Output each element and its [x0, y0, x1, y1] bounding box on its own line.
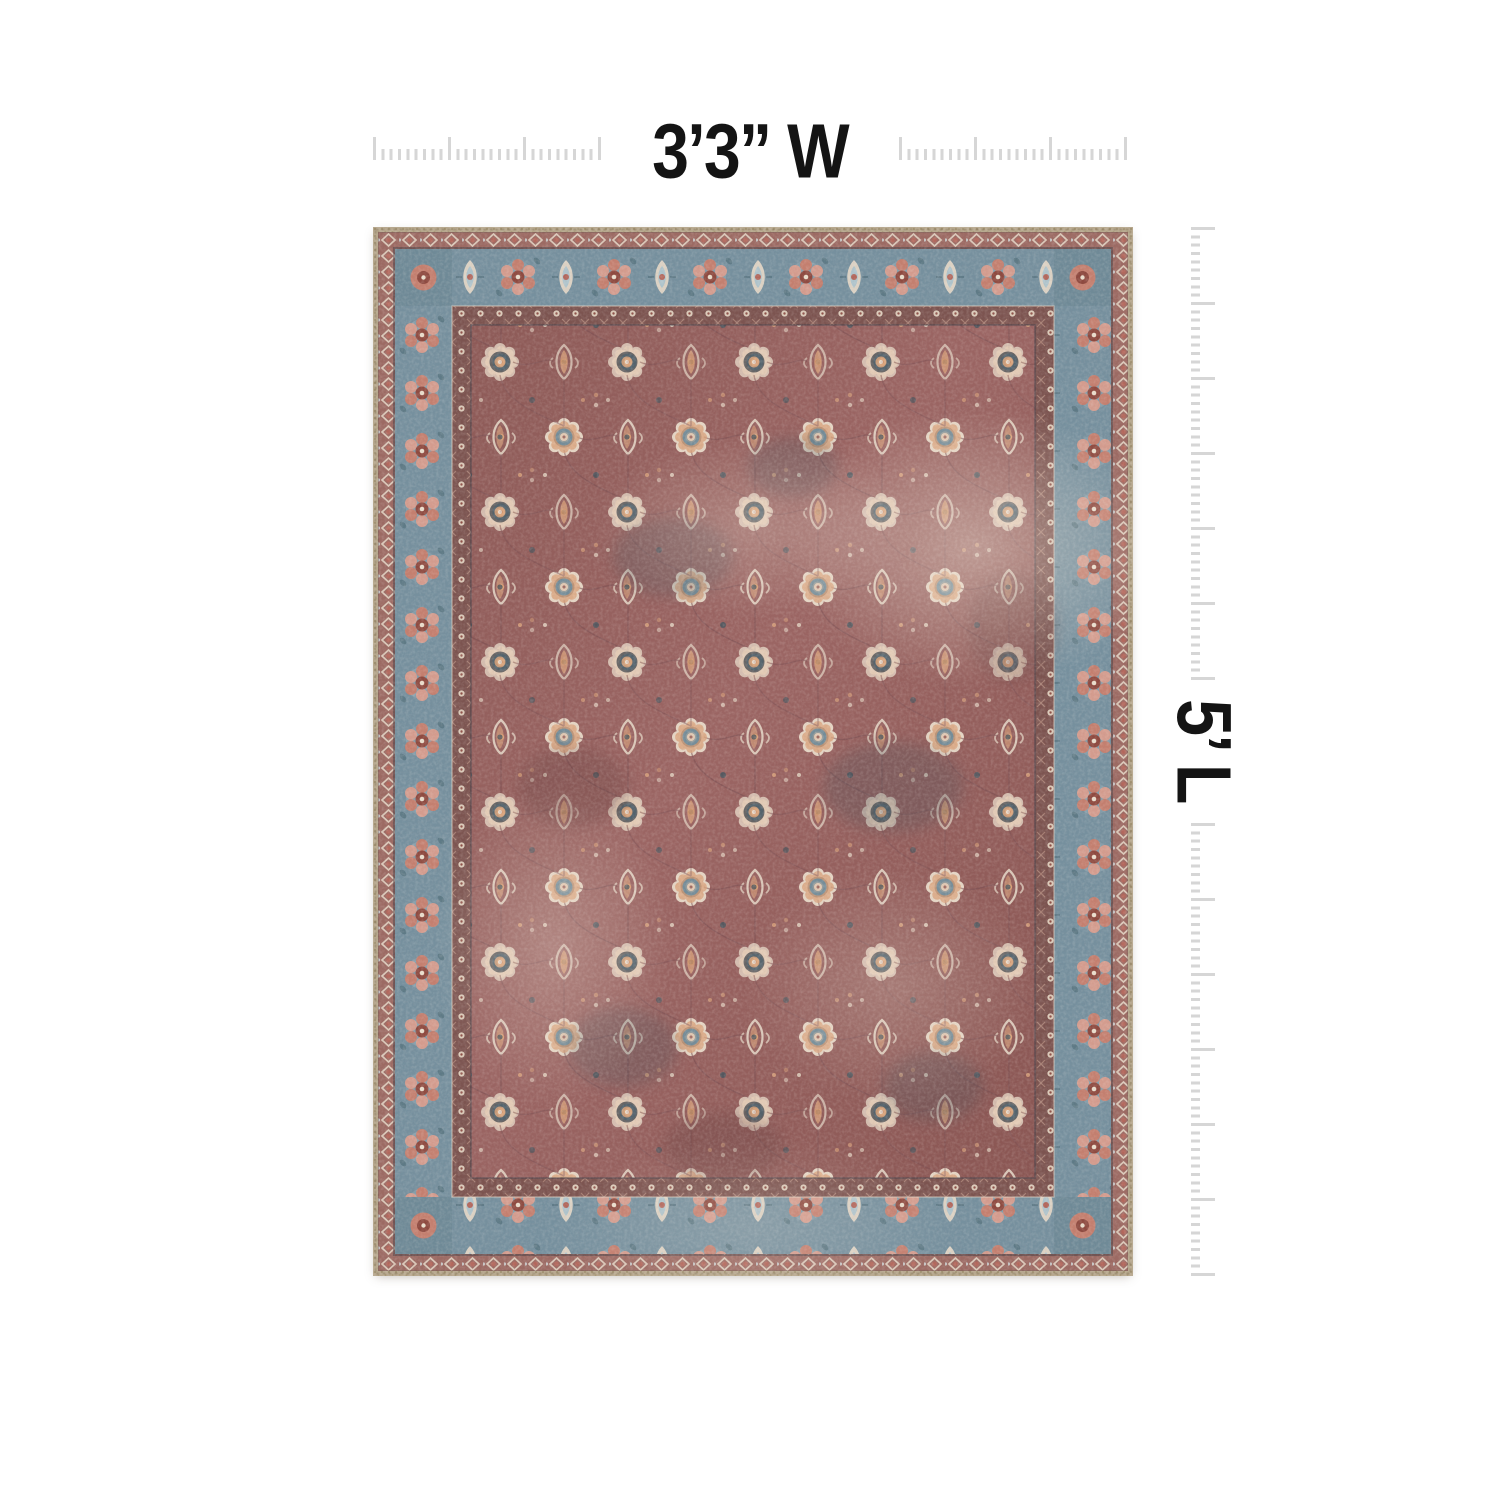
width-ruler-left-segment [373, 137, 602, 160]
width-ruler-right-segment [899, 137, 1128, 160]
length-label: 5’ L [1165, 699, 1242, 803]
length-ruler-bottom-segment [1191, 823, 1215, 1276]
width-label: 3’3” W [652, 114, 848, 191]
length-ruler-top-segment [1191, 227, 1215, 680]
product-dimension-image: 3’3” W 5’ L [0, 0, 1500, 1500]
rug-illustration [373, 227, 1133, 1276]
rug-image [373, 227, 1133, 1276]
rug-fade-overlay [373, 227, 1133, 1276]
